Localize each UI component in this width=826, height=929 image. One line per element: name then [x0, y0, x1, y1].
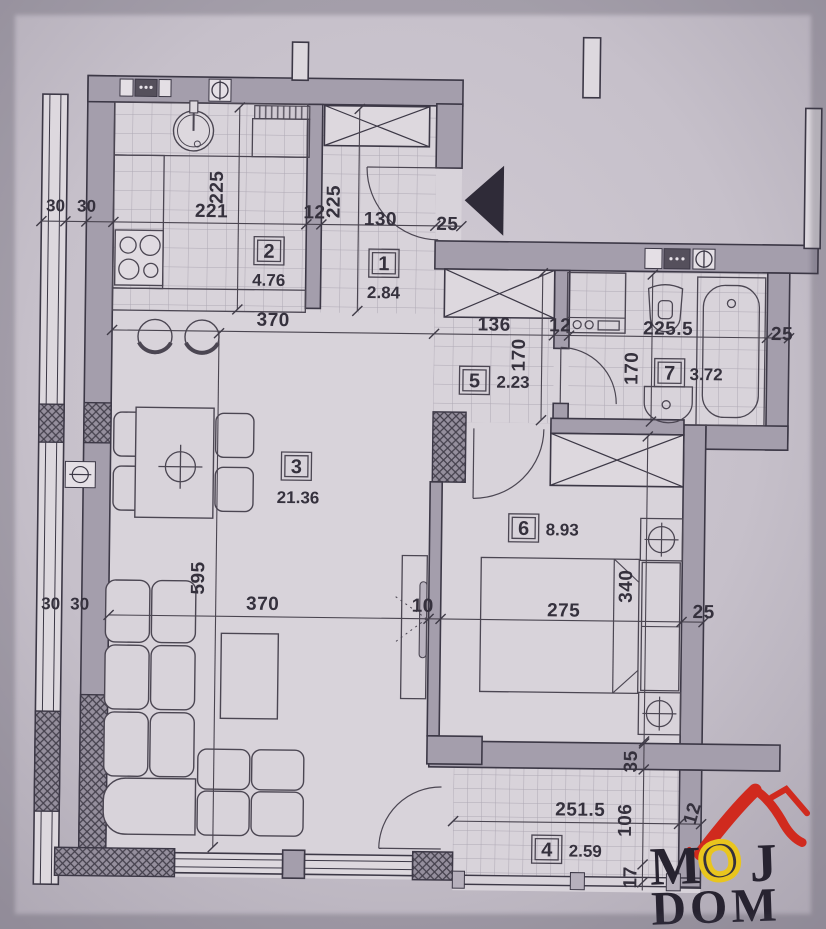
dim-label: 106: [615, 804, 636, 837]
dining-table-icon: [135, 407, 214, 518]
switchboard-icon: [159, 79, 171, 96]
wardrobe-icon: [444, 269, 555, 318]
dim-label: 340: [616, 569, 637, 602]
living-window-1: [174, 853, 282, 874]
dim-label: 12: [303, 202, 325, 223]
room-area: 2.23: [496, 373, 529, 392]
dim-label: 170: [621, 352, 642, 385]
living-window-2: [304, 854, 412, 875]
corner-pillar: [432, 412, 466, 482]
dim-label: 30: [77, 196, 96, 215]
room-number: 1: [378, 253, 389, 275]
room-area: 2.59: [569, 842, 602, 861]
entry-wall: [436, 104, 463, 168]
room-area: 2.84: [367, 283, 401, 302]
dim-label: 17: [620, 866, 641, 888]
bedroom-north-wall: [551, 418, 684, 435]
wardrobe-icon: [550, 433, 684, 487]
dim-label: 30: [70, 594, 89, 613]
wardrobe-icon: [324, 106, 429, 147]
room-number: 5: [469, 370, 480, 392]
step-wall: [706, 425, 788, 450]
south-wall-hatch-left: [54, 847, 174, 876]
dim-label: 130: [364, 209, 397, 230]
dim-label: 30: [41, 594, 60, 613]
stool-icon: [185, 320, 219, 354]
dim-label: 275: [547, 600, 580, 621]
dim-label: 225: [207, 170, 228, 203]
vent-icon: [209, 79, 231, 101]
stool-icon: [138, 319, 172, 353]
room-area: 8.93: [546, 520, 579, 539]
dim-label: 136: [477, 314, 510, 335]
dim-label: 25: [692, 602, 714, 623]
room-area: 4.76: [252, 271, 285, 290]
dim-label: 225.5: [643, 318, 693, 340]
party-wall-stub: [292, 42, 308, 80]
dim-label: 30: [46, 196, 65, 215]
dim-label: 370: [256, 310, 289, 331]
coffee-table-icon: [220, 633, 278, 719]
dim-label: 370: [246, 594, 279, 615]
dim-label: 25: [436, 214, 458, 235]
radiator-icon: [65, 461, 95, 487]
room-area: 3.72: [689, 365, 722, 384]
room-number: 7: [664, 363, 675, 385]
stove-icon: [115, 230, 164, 286]
neighbor-wall-stub: [583, 38, 601, 98]
corridor-wall: [435, 241, 818, 274]
exterior-wall-east-bath: [766, 273, 790, 450]
room-number: 6: [518, 518, 529, 540]
room-number: 4: [541, 839, 553, 861]
room-area: 21.36: [277, 488, 320, 508]
partition-jog: [427, 736, 482, 765]
south-wall-pillar: [282, 850, 304, 878]
vent-icon: [693, 249, 715, 269]
dim-label: 25: [771, 324, 793, 345]
floor-plan-drawing: 30 30 221 225 12 225 130 25 370 136 12 2…: [0, 0, 826, 929]
dim-label: 10: [412, 596, 434, 617]
shaft-box-icon: [645, 248, 662, 268]
south-wall-hatch-right: [412, 852, 452, 880]
dim-label: 595: [188, 561, 209, 594]
bathroom-floor-tiles: [568, 271, 768, 426]
switchboard-icon: [120, 79, 133, 96]
dim-label: 12: [549, 315, 571, 336]
dim-label: 251.5: [555, 799, 605, 821]
dim-label: 35: [621, 750, 642, 772]
dim-label: 225: [323, 185, 344, 218]
floor-plan-photo: 30 30 221 225 12 225 130 25 370 136 12 2…: [0, 0, 826, 929]
chair-icon: [215, 467, 254, 511]
room-number: 2: [263, 241, 274, 263]
room-number: 3: [291, 456, 302, 478]
dim-label: 170: [509, 338, 530, 371]
chair-icon: [216, 413, 255, 457]
dish-drainer-icon: [255, 106, 310, 120]
